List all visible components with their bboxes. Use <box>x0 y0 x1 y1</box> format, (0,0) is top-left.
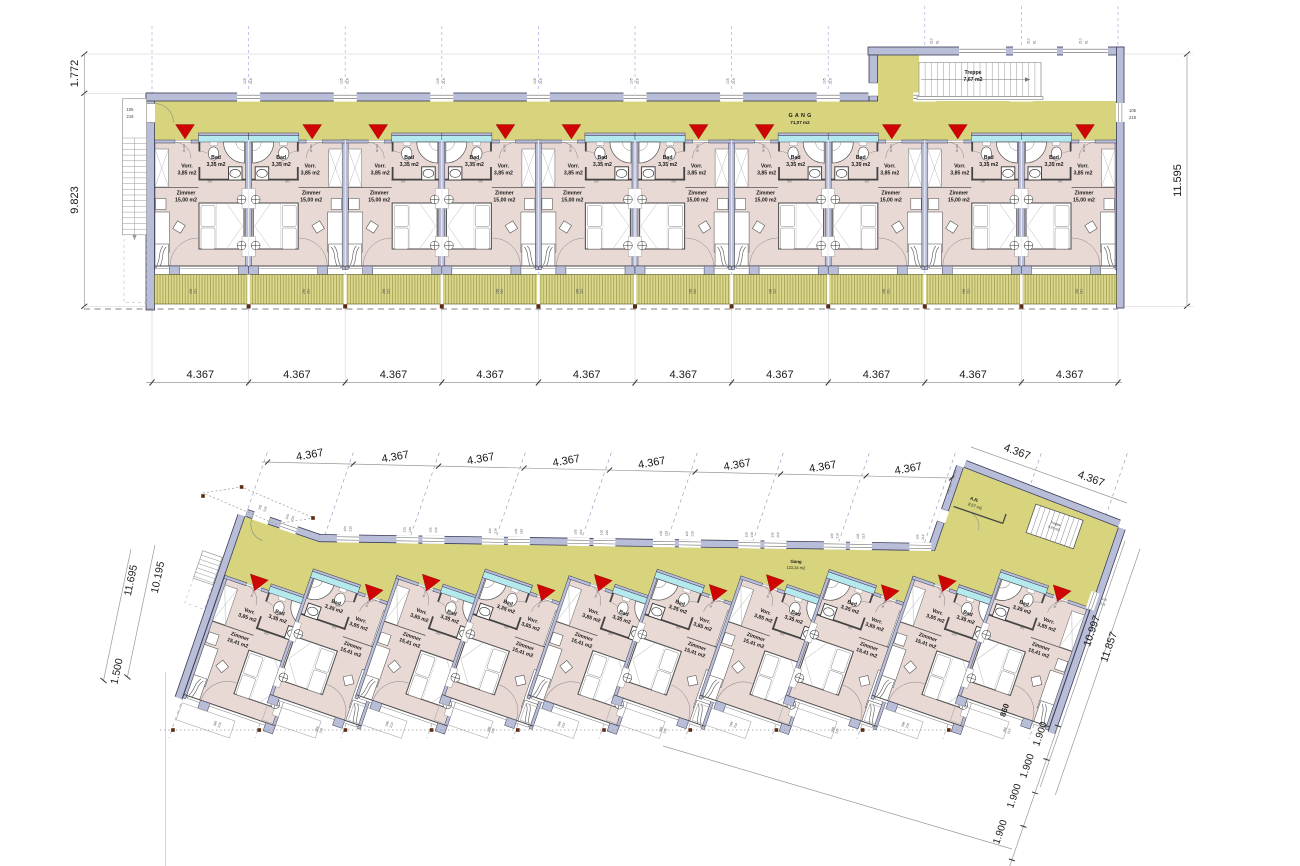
svg-text:219: 219 <box>1129 115 1137 120</box>
svg-text:4.367: 4.367 <box>380 369 408 381</box>
svg-text:Vorr.: Vorr. <box>954 164 966 170</box>
svg-text:210: 210 <box>1078 38 1082 44</box>
svg-text:Gang: Gang <box>790 559 802 564</box>
svg-text:219: 219 <box>861 533 865 539</box>
svg-text:105: 105 <box>823 78 827 84</box>
svg-text:219: 219 <box>635 78 639 84</box>
svg-text:219: 219 <box>539 78 543 84</box>
svg-text:Zimmer: Zimmer <box>302 191 321 197</box>
svg-text:Vorr.: Vorr. <box>568 164 580 170</box>
svg-text:219: 219 <box>691 531 695 537</box>
svg-text:15,00 m2: 15,00 m2 <box>175 197 197 203</box>
svg-text:219: 219 <box>307 288 311 294</box>
svg-text:105: 105 <box>340 78 344 84</box>
svg-text:105: 105 <box>403 527 407 533</box>
svg-text:219: 219 <box>750 532 754 538</box>
svg-text:105: 105 <box>436 78 440 84</box>
svg-text:90 210: 90 210 <box>568 143 572 151</box>
svg-text:3,85 m2: 3,85 m2 <box>687 170 706 176</box>
svg-text:15,00 m2: 15,00 m2 <box>687 197 709 203</box>
svg-text:219: 219 <box>886 288 890 294</box>
svg-text:Zimmer: Zimmer <box>688 191 707 197</box>
svg-text:286: 286 <box>382 288 386 294</box>
svg-text:219: 219 <box>387 288 391 294</box>
svg-text:219: 219 <box>500 288 504 294</box>
svg-text:219: 219 <box>408 527 412 533</box>
svg-text:Zimmer: Zimmer <box>495 191 514 197</box>
svg-text:3,35 m2: 3,35 m2 <box>465 162 484 168</box>
svg-text:Bad: Bad <box>211 155 221 161</box>
svg-text:15,00 m2: 15,00 m2 <box>755 197 777 203</box>
svg-text:3,85 m2: 3,85 m2 <box>494 170 513 176</box>
svg-text:4.367: 4.367 <box>766 369 794 381</box>
svg-text:219: 219 <box>829 78 833 84</box>
svg-text:Vorr.: Vorr. <box>498 164 510 170</box>
svg-text:Bad: Bad <box>469 155 479 161</box>
svg-text:210: 210 <box>1026 38 1030 44</box>
svg-text:286: 286 <box>495 288 499 294</box>
svg-text:Vorr.: Vorr. <box>761 164 773 170</box>
svg-text:105: 105 <box>514 528 518 534</box>
svg-text:105: 105 <box>600 530 604 536</box>
svg-text:105: 105 <box>659 530 663 536</box>
svg-text:105: 105 <box>744 532 748 538</box>
svg-text:105: 105 <box>574 529 578 535</box>
svg-text:3,85 m2: 3,85 m2 <box>757 170 776 176</box>
svg-text:219: 219 <box>127 114 135 119</box>
svg-text:Vorr.: Vorr. <box>1077 164 1089 170</box>
svg-text:219: 219 <box>349 526 353 532</box>
svg-text:105: 105 <box>629 78 633 84</box>
svg-text:Vorr.: Vorr. <box>304 164 316 170</box>
svg-text:15,00 m2: 15,00 m2 <box>561 197 583 203</box>
svg-text:15,00 m2: 15,00 m2 <box>948 197 970 203</box>
svg-text:219: 219 <box>1080 288 1084 294</box>
svg-text:123,34 m2: 123,34 m2 <box>786 565 806 571</box>
svg-text:105: 105 <box>243 78 247 84</box>
svg-text:4.367: 4.367 <box>1056 369 1084 381</box>
svg-text:105: 105 <box>127 107 135 112</box>
svg-text:219: 219 <box>605 530 609 536</box>
svg-text:4.367: 4.367 <box>476 369 504 381</box>
svg-text:3,85 m2: 3,85 m2 <box>177 170 196 176</box>
svg-text:286: 286 <box>962 288 966 294</box>
svg-text:105: 105 <box>856 533 860 539</box>
svg-text:286: 286 <box>769 288 773 294</box>
svg-text:219: 219 <box>194 288 198 294</box>
svg-text:Treppe: Treppe <box>964 70 981 76</box>
svg-text:Vorr.: Vorr. <box>884 164 896 170</box>
svg-text:105: 105 <box>533 78 537 84</box>
svg-text:286: 286 <box>575 288 579 294</box>
svg-text:Zimmer: Zimmer <box>949 191 968 197</box>
svg-text:219: 219 <box>346 78 350 84</box>
svg-text:219: 219 <box>580 288 584 294</box>
svg-text:15,00 m2: 15,00 m2 <box>300 197 322 203</box>
svg-text:3,85 m2: 3,85 m2 <box>950 170 969 176</box>
svg-text:Bad: Bad <box>984 155 994 161</box>
svg-text:219: 219 <box>776 532 780 538</box>
svg-text:3,35 m2: 3,35 m2 <box>786 162 805 168</box>
svg-text:3,35 m2: 3,35 m2 <box>272 162 291 168</box>
svg-text:4.367: 4.367 <box>187 369 215 381</box>
svg-text:3,85 m2: 3,85 m2 <box>1073 170 1092 176</box>
svg-text:Bad: Bad <box>404 155 414 161</box>
svg-text:90 210: 90 210 <box>375 143 379 151</box>
svg-text:Bad: Bad <box>1049 155 1059 161</box>
svg-text:219: 219 <box>520 528 524 534</box>
svg-text:3,85 m2: 3,85 m2 <box>301 170 320 176</box>
svg-text:90 210: 90 210 <box>182 143 186 151</box>
svg-text:Vorr.: Vorr. <box>691 164 703 170</box>
svg-text:219: 219 <box>966 288 970 294</box>
svg-text:Zimmer: Zimmer <box>1075 191 1094 197</box>
svg-text:61: 61 <box>935 40 939 44</box>
svg-text:Zimmer: Zimmer <box>563 191 582 197</box>
svg-text:3,35 m2: 3,35 m2 <box>851 162 870 168</box>
svg-text:219: 219 <box>442 78 446 84</box>
svg-text:90 210: 90 210 <box>309 143 313 151</box>
svg-text:219: 219 <box>921 534 925 540</box>
svg-text:105: 105 <box>830 533 834 539</box>
svg-text:Vorr.: Vorr. <box>181 164 193 170</box>
svg-text:105: 105 <box>726 78 730 84</box>
svg-text:286: 286 <box>1075 288 1079 294</box>
svg-text:219: 219 <box>693 288 697 294</box>
svg-text:286: 286 <box>689 288 693 294</box>
svg-text:105: 105 <box>1129 108 1137 113</box>
svg-text:286: 286 <box>882 288 886 294</box>
svg-text:Vorr.: Vorr. <box>374 164 386 170</box>
svg-text:4.367: 4.367 <box>959 369 987 381</box>
svg-text:219: 219 <box>579 529 583 535</box>
svg-text:1.772: 1.772 <box>69 60 81 88</box>
svg-text:219: 219 <box>835 533 839 539</box>
svg-text:105: 105 <box>488 528 492 534</box>
svg-text:105: 105 <box>343 526 347 532</box>
svg-text:90 210: 90 210 <box>1082 143 1086 151</box>
svg-text:15,00 m2: 15,00 m2 <box>493 197 515 203</box>
svg-text:219: 219 <box>732 78 736 84</box>
svg-text:90 210: 90 210 <box>502 143 506 151</box>
svg-text:Bad: Bad <box>791 155 801 161</box>
svg-text:4.367: 4.367 <box>670 369 698 381</box>
svg-text:3,35 m2: 3,35 m2 <box>206 162 225 168</box>
svg-text:4.367: 4.367 <box>863 369 891 381</box>
svg-text:15,00 m2: 15,00 m2 <box>880 197 902 203</box>
svg-text:Zimmer: Zimmer <box>370 191 389 197</box>
svg-text:Bad: Bad <box>597 155 607 161</box>
svg-text:61: 61 <box>1032 40 1036 44</box>
svg-text:219: 219 <box>494 528 498 534</box>
svg-text:3,35 m2: 3,35 m2 <box>1044 162 1063 168</box>
svg-text:3,35 m2: 3,35 m2 <box>658 162 677 168</box>
svg-text:105: 105 <box>685 531 689 537</box>
svg-text:9.823: 9.823 <box>69 186 81 214</box>
svg-text:Zimmer: Zimmer <box>881 191 900 197</box>
svg-text:3,85 m2: 3,85 m2 <box>880 170 899 176</box>
svg-text:Bad: Bad <box>276 155 286 161</box>
svg-text:Bad: Bad <box>663 155 673 161</box>
svg-text:219: 219 <box>773 288 777 294</box>
svg-text:4.367: 4.367 <box>573 369 601 381</box>
svg-text:61: 61 <box>1084 40 1088 44</box>
svg-text:7,67 m2: 7,67 m2 <box>963 77 982 83</box>
svg-text:15,00 m2: 15,00 m2 <box>368 197 390 203</box>
svg-text:105: 105 <box>770 532 774 538</box>
svg-text:Zimmer: Zimmer <box>756 191 775 197</box>
svg-text:11.595: 11.595 <box>1172 164 1184 197</box>
svg-text:90 210: 90 210 <box>889 143 893 151</box>
svg-text:210: 210 <box>929 38 933 44</box>
svg-text:286: 286 <box>302 288 306 294</box>
svg-text:286: 286 <box>189 288 193 294</box>
svg-text:90 210: 90 210 <box>955 143 959 151</box>
svg-text:4.367: 4.367 <box>283 369 311 381</box>
svg-text:219: 219 <box>434 527 438 533</box>
svg-text:GANG: GANG <box>789 113 814 119</box>
svg-text:105: 105 <box>429 527 433 533</box>
svg-text:219: 219 <box>249 78 253 84</box>
svg-text:3,85 m2: 3,85 m2 <box>371 170 390 176</box>
svg-text:219: 219 <box>665 531 669 537</box>
svg-text:71,07 m2: 71,07 m2 <box>790 120 810 125</box>
svg-text:90 210: 90 210 <box>762 143 766 151</box>
svg-text:Zimmer: Zimmer <box>177 191 196 197</box>
svg-text:3,35 m2: 3,35 m2 <box>400 162 419 168</box>
svg-text:Bad: Bad <box>856 155 866 161</box>
svg-text:105: 105 <box>915 534 919 540</box>
svg-text:3,85 m2: 3,85 m2 <box>564 170 583 176</box>
svg-text:3,35 m2: 3,35 m2 <box>593 162 612 168</box>
svg-text:3,35 m2: 3,35 m2 <box>979 162 998 168</box>
svg-text:15,00 m2: 15,00 m2 <box>1073 197 1095 203</box>
svg-text:90 210: 90 210 <box>696 143 700 151</box>
